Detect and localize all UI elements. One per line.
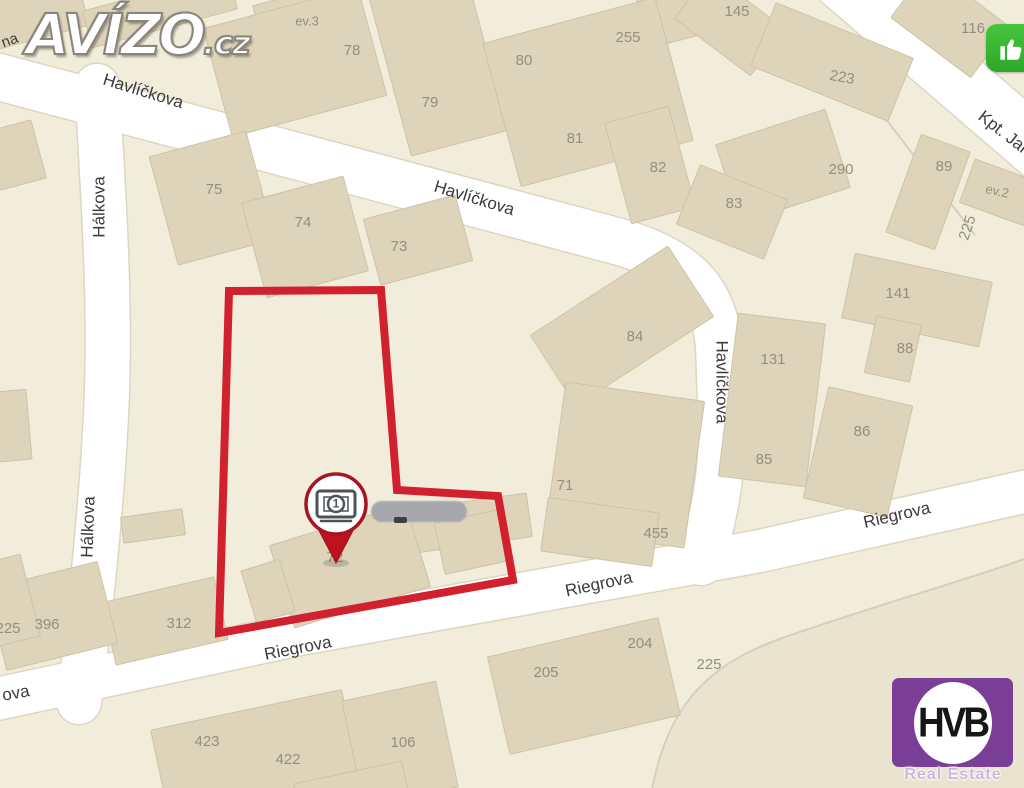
building-number: 225: [696, 656, 721, 673]
building-number: 78: [344, 42, 361, 59]
street-label: Hálkova: [77, 495, 98, 558]
building-number: 88: [897, 340, 914, 357]
building-number: ev.3: [295, 13, 319, 28]
avizo-logo-text: AVÍZO: [26, 3, 203, 68]
building-number: 396: [34, 616, 59, 633]
hvb-logo: HVB Real Estate: [892, 678, 1013, 767]
building-number: 79: [422, 94, 439, 111]
building-number: 86: [854, 423, 871, 440]
building-number: 131: [760, 351, 785, 368]
building-number: 73: [391, 238, 408, 255]
building-number: 85: [756, 451, 773, 468]
hvb-logo-text: HVB: [918, 699, 987, 746]
banknote-icon: 1: [317, 491, 355, 521]
building-number: 455: [643, 525, 668, 542]
hvb-logo-subtitle: Real Estate: [888, 766, 1018, 784]
redacted-label-mark: [394, 517, 407, 523]
building-number: 71: [557, 477, 574, 494]
street-label: Havlíčkova: [713, 340, 732, 424]
hvb-logo-circle: HVB: [914, 682, 992, 764]
building-number: 422: [275, 751, 300, 768]
building-number: 106: [390, 734, 415, 751]
building-number: 82: [650, 159, 667, 176]
building-number: 74: [295, 214, 312, 231]
building-number: 84: [627, 328, 644, 345]
building-number: 255: [615, 29, 640, 46]
avizo-watermark: AVÍZO.cz: [26, 0, 250, 79]
building-number: 75: [206, 181, 223, 198]
avizo-logo-tld: .cz: [203, 24, 250, 62]
building-number: 290: [828, 161, 853, 178]
building-number: 145: [724, 3, 749, 20]
building-number: 225: [0, 620, 21, 637]
map-screenshot: { "page": {"width": 1024, "height": 788}…: [0, 0, 1024, 788]
building-number: 83: [726, 195, 743, 212]
building-number: 205: [533, 664, 558, 681]
street-label: Hálkova: [89, 176, 108, 238]
redacted-label: [371, 501, 467, 522]
building-number: 204: [627, 635, 652, 652]
map-canvas[interactable]: 7879808182255ev.314511622329089ev.222583…: [0, 0, 1024, 788]
building-number: 141: [885, 285, 910, 302]
building-number: 312: [166, 615, 191, 632]
building-number: 80: [516, 52, 533, 69]
thumbs-up-icon: [997, 35, 1024, 62]
building-number: 423: [194, 733, 219, 750]
building: [0, 389, 32, 462]
building-number: 89: [936, 158, 953, 175]
pin-label: 1: [333, 497, 340, 511]
like-button[interactable]: [986, 24, 1024, 72]
building-number: 116: [961, 20, 985, 37]
building-number: 81: [567, 130, 584, 147]
